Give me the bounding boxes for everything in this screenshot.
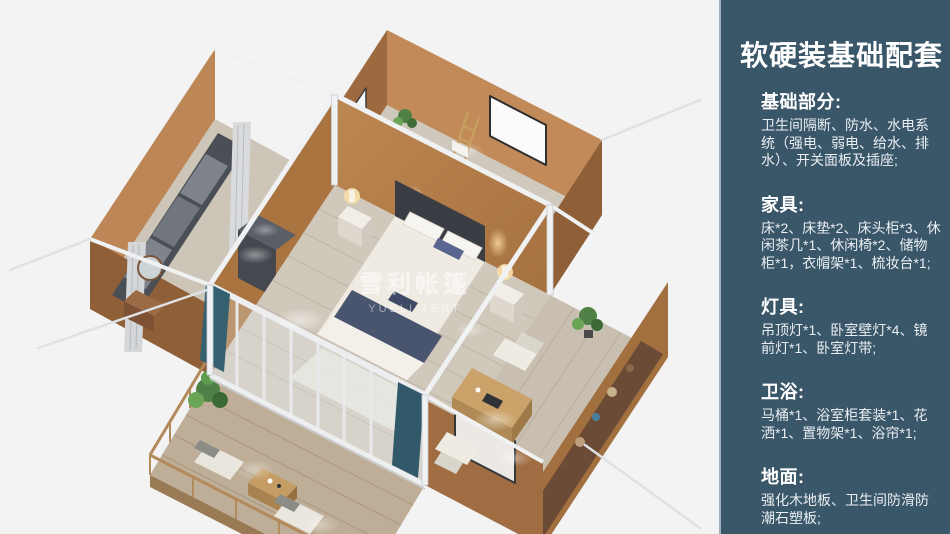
wall-sconce <box>488 228 508 258</box>
section-basics-body: 卫生间隔断、防水、水电系统（强电、弱电、给水、排水）、开关面板及插座; <box>761 117 941 170</box>
section-lighting: 灯具: 吊顶灯*1、卧室壁灯*4、镜前灯*1、卧室灯带; <box>761 293 941 357</box>
section-lighting-heading: 灯具: <box>761 293 941 319</box>
spec-panel: 软硬装基础配套 基础部分: 卫生间隔断、防水、水电系统（强电、弱电、给水、排水）… <box>719 0 950 534</box>
section-bathroom-body: 马桶*1、浴室柜套装*1、花洒*1、置物架*1、浴帘*1; <box>761 407 941 442</box>
section-flooring-heading: 地面: <box>761 463 941 489</box>
panel-title: 软硬装基础配套 <box>740 40 941 72</box>
section-basics: 基础部分: 卫生间隔断、防水、水电系统（强电、弱电、给水、排水）、开关面板及插座… <box>761 88 941 170</box>
section-flooring: 地面: 强化木地板、卫生间防滑防潮石塑板; <box>761 463 941 527</box>
floorplan-svg: 雪利帐篷 YUELI TENT <box>0 0 719 534</box>
svg-text:雪利帐篷: 雪利帐篷 <box>359 270 471 298</box>
svg-text:YUELI TENT: YUELI TENT <box>368 303 461 315</box>
slide: 雪利帐篷 YUELI TENT 软硬装基础配套 基础部分: 卫生间隔断、防水、水… <box>0 0 950 534</box>
section-bathroom: 卫浴: 马桶*1、浴室柜套装*1、花洒*1、置物架*1、浴帘*1; <box>761 378 941 442</box>
section-flooring-body: 强化木地板、卫生间防滑防潮石塑板; <box>761 492 941 527</box>
section-basics-heading: 基础部分: <box>761 88 941 114</box>
floorplan-3d-render: 雪利帐篷 YUELI TENT <box>0 0 719 534</box>
section-bathroom-heading: 卫浴: <box>761 378 941 404</box>
section-furniture: 家具: 床*2、床垫*2、床头柜*3、休闲茶几*1、休闲椅*2、储物柜*1，衣帽… <box>761 191 941 273</box>
section-furniture-heading: 家具: <box>761 191 941 217</box>
watermark: 雪利帐篷 YUELI TENT <box>359 270 471 315</box>
section-lighting-body: 吊顶灯*1、卧室壁灯*4、镜前灯*1、卧室灯带; <box>761 322 941 357</box>
section-furniture-body: 床*2、床垫*2、床头柜*3、休闲茶几*1、休闲椅*2、储物柜*1，衣帽架*1、… <box>761 220 941 273</box>
